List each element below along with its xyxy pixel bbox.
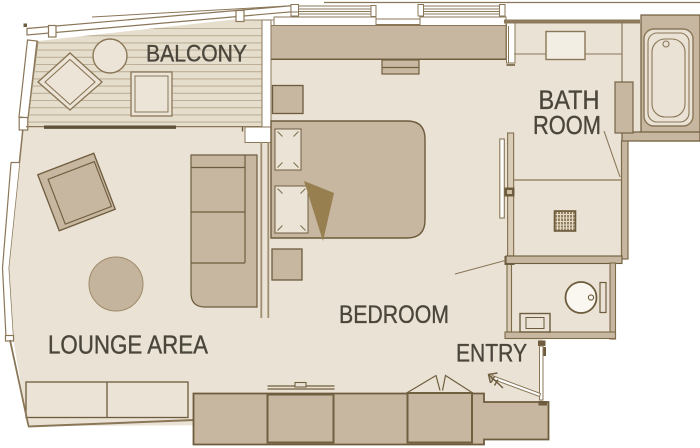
svg-text:ROOM: ROOM — [533, 110, 601, 140]
svg-text:ENTRY: ENTRY — [456, 340, 527, 368]
svg-text:BEDROOM: BEDROOM — [339, 301, 449, 329]
svg-text:BALCONY: BALCONY — [146, 41, 247, 68]
svg-text:LOUNGE AREA: LOUNGE AREA — [48, 332, 208, 360]
